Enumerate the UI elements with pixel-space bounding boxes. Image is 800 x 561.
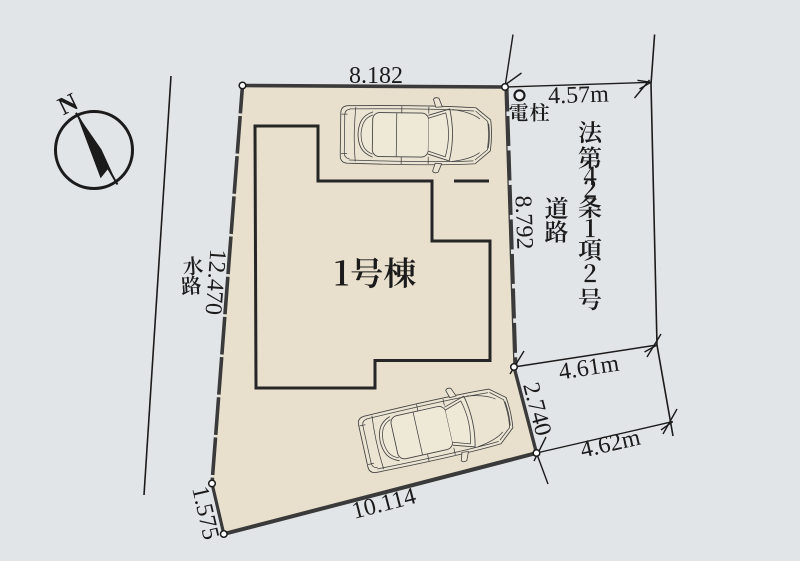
svg-text:4.57m: 4.57m [548,81,610,109]
svg-text:12.470: 12.470 [200,248,231,316]
svg-text:8.182: 8.182 [349,63,403,89]
svg-text:8.792: 8.792 [510,195,538,250]
